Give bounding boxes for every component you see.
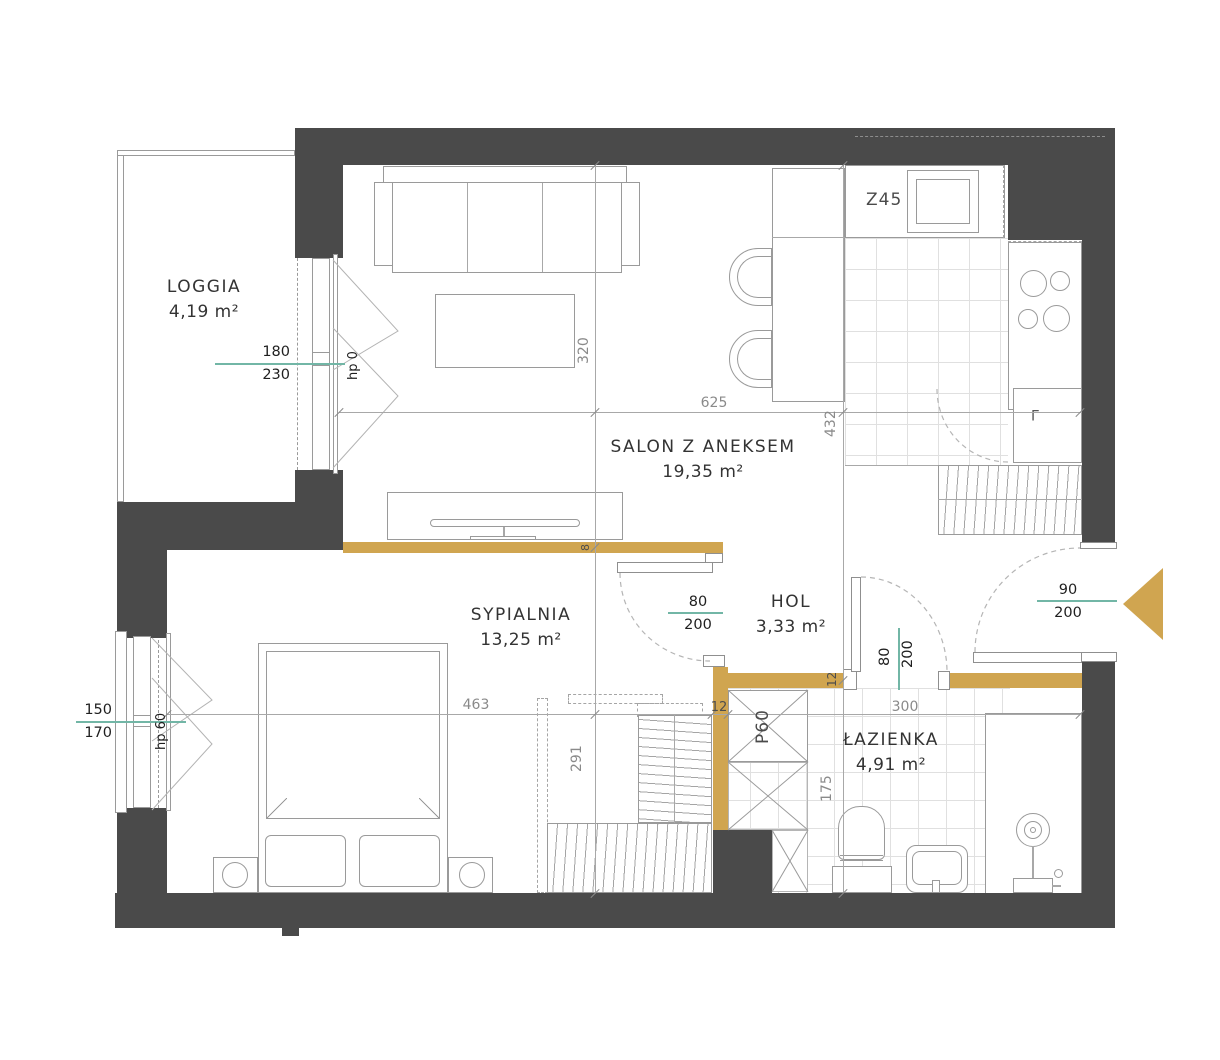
wall-bottom bbox=[115, 893, 1115, 928]
wall-right-upper bbox=[1082, 240, 1115, 543]
dim-bedroom-width: 463 bbox=[448, 698, 504, 712]
wardrobe-lower bbox=[547, 823, 712, 893]
kitchen-tile-floor bbox=[845, 238, 1008, 465]
stove-burner bbox=[1020, 270, 1047, 297]
room-name: ŁAZIENKA bbox=[806, 730, 976, 750]
sofa-armrest-left bbox=[374, 182, 393, 266]
toilet-seat-lines bbox=[840, 855, 883, 861]
shower-arm bbox=[1032, 846, 1034, 879]
sofa-cushion-divider bbox=[467, 183, 468, 272]
wall-bath-block bbox=[713, 830, 772, 893]
wall-loggia-right-upper bbox=[295, 165, 343, 258]
shaft-small-box bbox=[772, 830, 808, 892]
bed-mattress bbox=[266, 651, 440, 819]
dim-line-horizontal-salon bbox=[339, 412, 1082, 413]
bedroom-door-height: 200 bbox=[676, 618, 720, 633]
window-dim-line bbox=[215, 363, 345, 365]
wall-cap bbox=[1080, 542, 1117, 549]
door-jamb bbox=[843, 669, 857, 690]
bed-corner-fold bbox=[419, 798, 440, 819]
wall-top bbox=[295, 128, 1008, 165]
stove-dashed-edge bbox=[1008, 241, 1082, 242]
wall-left-window-lower bbox=[117, 808, 167, 893]
dim-line-horizontal-bedroom bbox=[167, 714, 1080, 715]
door-jamb bbox=[938, 671, 950, 690]
room-label-sypialnia: SYPIALNIA 13,25 m² bbox=[426, 605, 616, 650]
room-area: 13,25 m² bbox=[426, 630, 616, 650]
stove-burner bbox=[1018, 309, 1038, 329]
wall-under-loggia bbox=[117, 502, 343, 550]
bathroom-door-height: 200 bbox=[901, 631, 917, 677]
bar-stool-inner bbox=[737, 338, 772, 380]
shower-head-dot bbox=[1030, 827, 1036, 833]
door-dim-line bbox=[1037, 600, 1117, 602]
dim-salon-width: 625 bbox=[686, 396, 742, 410]
bed-pillow bbox=[359, 835, 440, 887]
wall-top-right-block bbox=[1008, 128, 1115, 240]
bedroom-door-leaf bbox=[617, 562, 713, 573]
fridge bbox=[1013, 388, 1082, 463]
partition-wall-bath-west bbox=[713, 667, 728, 830]
tv-base bbox=[470, 536, 536, 540]
room-area: 19,35 m² bbox=[588, 462, 818, 482]
bedroom-window-width: 150 bbox=[70, 703, 112, 718]
bar-table-divider bbox=[772, 237, 845, 238]
dim-wall-partition: 8 bbox=[580, 540, 592, 555]
room-name: SYPIALNIA bbox=[426, 605, 616, 625]
bathroom-door-width: 80 bbox=[878, 640, 894, 674]
entry-closet-shelf-line bbox=[938, 499, 1082, 500]
bathroom-door-leaf bbox=[851, 577, 861, 672]
room-label-hol: HOL 3,33 m² bbox=[736, 592, 846, 637]
nightstand-lamp bbox=[222, 862, 248, 888]
toilet-cistern bbox=[832, 866, 892, 893]
bar-table bbox=[772, 168, 845, 402]
stove-burner bbox=[1043, 305, 1070, 332]
sofa-seat bbox=[392, 182, 622, 273]
room-label-salon: SALON Z ANEKSEM 19,35 m² bbox=[588, 437, 818, 482]
dim-bedroom-depth: 291 bbox=[570, 733, 586, 785]
wall-loggia-right-lower bbox=[295, 470, 343, 502]
balcony-door-height: 230 bbox=[248, 368, 290, 383]
stove-burner bbox=[1050, 271, 1070, 291]
washbasin-pedestal bbox=[932, 880, 940, 893]
floor-plan: L bbox=[0, 0, 1220, 1060]
upper-cabinet-dashed-line bbox=[855, 136, 1105, 137]
kitchen-unit-code: Z45 bbox=[866, 190, 902, 210]
wall-left-window-upper bbox=[117, 550, 167, 638]
loggia-top-wall bbox=[117, 150, 295, 156]
dim-bath-width: 300 bbox=[877, 700, 933, 714]
bar-stool-inner bbox=[737, 256, 772, 298]
dim-line-vertical-right bbox=[843, 165, 844, 893]
room-area: 4,19 m² bbox=[118, 302, 290, 322]
shaft-code: P60 bbox=[753, 702, 777, 752]
partition-wall-bath-north-right bbox=[946, 673, 1082, 688]
loggia-left-wall bbox=[117, 150, 124, 502]
nightstand-lamp bbox=[459, 862, 485, 888]
bedroom-window-sill-label: hp 60 bbox=[155, 700, 173, 762]
room-name: SALON Z ANEKSEM bbox=[588, 437, 818, 457]
room-area: 3,33 m² bbox=[736, 617, 846, 637]
bed-corner-fold bbox=[266, 798, 287, 819]
dim-kitchen-depth: 432 bbox=[824, 398, 840, 450]
entrance-arrow-icon bbox=[1123, 568, 1163, 640]
bed-pillow bbox=[265, 835, 346, 887]
room-name: LOGGIA bbox=[118, 277, 290, 297]
wall-bottom-notch bbox=[282, 928, 299, 936]
kitchen-counter-dashed-edge bbox=[1003, 165, 1004, 238]
balcony-casement-swing-icon bbox=[333, 260, 398, 370]
sofa-cushion-divider bbox=[542, 183, 543, 272]
fridge-letter: L bbox=[1031, 406, 1051, 422]
wall-right-lower bbox=[1082, 662, 1115, 893]
balcony-casement-swing-icon bbox=[333, 328, 398, 468]
entrance-door-height: 200 bbox=[1046, 606, 1090, 621]
tv-cabinet bbox=[387, 492, 623, 540]
wardrobe-divider bbox=[674, 715, 675, 823]
oven-microwave-inner bbox=[916, 179, 970, 224]
dim-line-vertical-left bbox=[595, 165, 596, 893]
partition-wall-bedroom bbox=[343, 542, 723, 553]
room-area: 4,91 m² bbox=[806, 755, 976, 775]
dim-wall-bath: 12 bbox=[826, 670, 840, 689]
entrance-door-leaf bbox=[973, 652, 1082, 663]
room-label-lazienka: ŁAZIENKA 4,91 m² bbox=[806, 730, 976, 775]
tv-screen bbox=[430, 519, 580, 527]
entrance-door-width: 90 bbox=[1046, 583, 1090, 598]
wardrobe-upper bbox=[638, 715, 712, 823]
balcony-door-sill: hp 0 bbox=[347, 346, 363, 386]
entry-closet bbox=[938, 465, 1082, 535]
balcony-door-width: 180 bbox=[248, 345, 290, 360]
door-jamb bbox=[703, 655, 725, 667]
room-label-loggia: LOGGIA 4,19 m² bbox=[118, 277, 290, 322]
sofa-armrest-right bbox=[621, 182, 640, 266]
door-dim-line bbox=[668, 612, 723, 614]
dim-wall-hol: 12 bbox=[706, 701, 732, 714]
bedroom-door-width: 80 bbox=[676, 595, 720, 610]
toilet-bowl bbox=[838, 806, 885, 860]
shower-spout bbox=[1052, 885, 1061, 887]
shaft-lower-box bbox=[728, 762, 808, 830]
shower-knob bbox=[1054, 869, 1063, 878]
room-name: HOL bbox=[736, 592, 846, 612]
coffee-table bbox=[435, 294, 575, 368]
dim-salon-depth: 320 bbox=[577, 325, 593, 377]
bedroom-window-height: 170 bbox=[70, 726, 112, 741]
wall-cap bbox=[1080, 652, 1117, 662]
shower-control-box bbox=[1013, 878, 1053, 893]
